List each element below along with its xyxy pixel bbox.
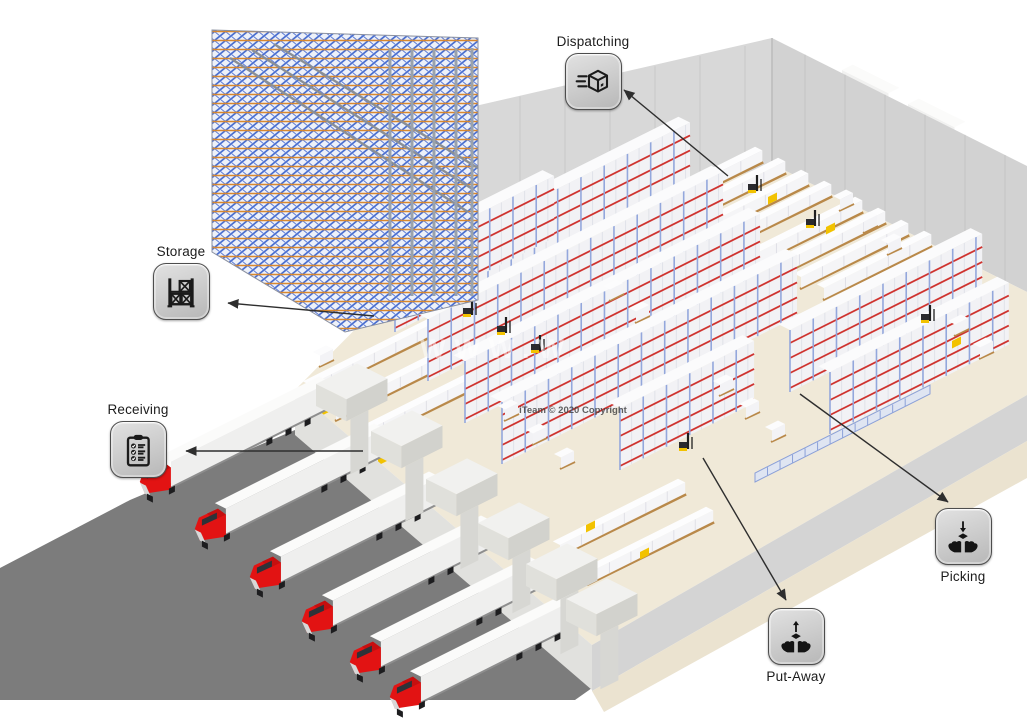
storage-label: Storage bbox=[157, 244, 206, 259]
receiving-label: Receiving bbox=[107, 402, 168, 417]
shipping-box-icon[interactable] bbox=[565, 53, 622, 110]
warehouse-scene: iTeam © 2020 Copyright WWW.W bbox=[0, 0, 1027, 720]
node-picking: Picking bbox=[917, 508, 1009, 584]
node-receiving: Receiving bbox=[92, 402, 184, 478]
warehouse-diagram: iTeam © 2020 Copyright WWW.W Dispatching… bbox=[0, 0, 1027, 720]
node-dispatching: Dispatching bbox=[547, 34, 639, 110]
website-watermark: WWW.W bbox=[420, 334, 573, 364]
copyright-watermark: iTeam © 2020 Copyright bbox=[519, 405, 627, 416]
pallet-rack-icon[interactable] bbox=[153, 263, 210, 320]
high-bay-storage-structure bbox=[212, 30, 478, 332]
picking-label: Picking bbox=[941, 569, 986, 584]
hands-putting-box-icon[interactable] bbox=[768, 608, 825, 665]
node-storage: Storage bbox=[135, 244, 227, 320]
node-put-away: Put-Away bbox=[750, 608, 842, 684]
put-away-label: Put-Away bbox=[766, 669, 825, 684]
dispatching-label: Dispatching bbox=[557, 34, 630, 49]
hands-receiving-box-icon[interactable] bbox=[935, 508, 992, 565]
receiving-checklist-icon[interactable] bbox=[110, 421, 167, 478]
scene-geometry bbox=[0, 30, 1027, 718]
